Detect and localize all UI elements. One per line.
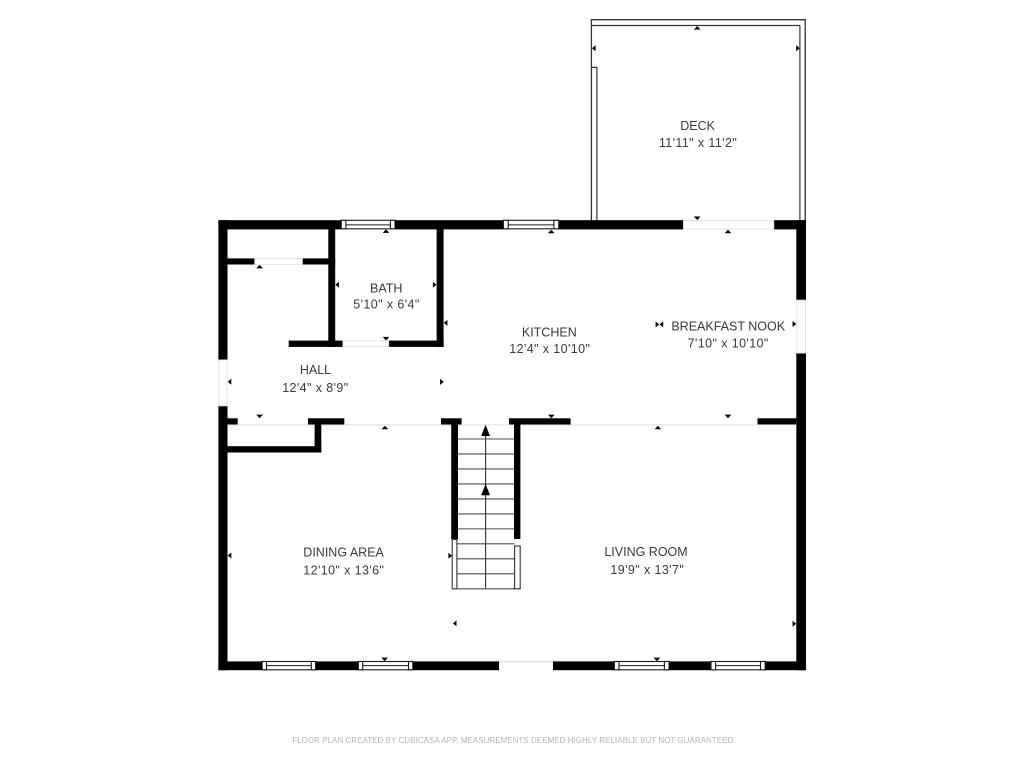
- svg-text:KITCHEN: KITCHEN: [522, 326, 577, 340]
- svg-text:7'10" x 10'10": 7'10" x 10'10": [688, 337, 769, 351]
- svg-text:HALL: HALL: [300, 363, 331, 377]
- svg-text:DINING AREA: DINING AREA: [303, 545, 384, 559]
- svg-text:FLOOR PLAN CREATED BY CUBICASA: FLOOR PLAN CREATED BY CUBICASA APP. MEAS…: [292, 736, 735, 745]
- svg-text:LIVING ROOM: LIVING ROOM: [604, 545, 687, 559]
- svg-text:DECK: DECK: [680, 119, 715, 133]
- svg-text:BREAKFAST NOOK: BREAKFAST NOOK: [671, 320, 785, 334]
- svg-text:12'4" x 8'9": 12'4" x 8'9": [282, 381, 348, 395]
- svg-text:12'10" x 13'6": 12'10" x 13'6": [303, 563, 384, 577]
- svg-text:BATH: BATH: [370, 282, 402, 296]
- svg-text:11'11" x 11'2": 11'11" x 11'2": [659, 136, 737, 150]
- svg-text:19'9" x 13'7": 19'9" x 13'7": [610, 563, 684, 577]
- svg-text:5'10" x 6'4": 5'10" x 6'4": [353, 298, 419, 312]
- svg-text:12'4" x 10'10": 12'4" x 10'10": [509, 342, 590, 356]
